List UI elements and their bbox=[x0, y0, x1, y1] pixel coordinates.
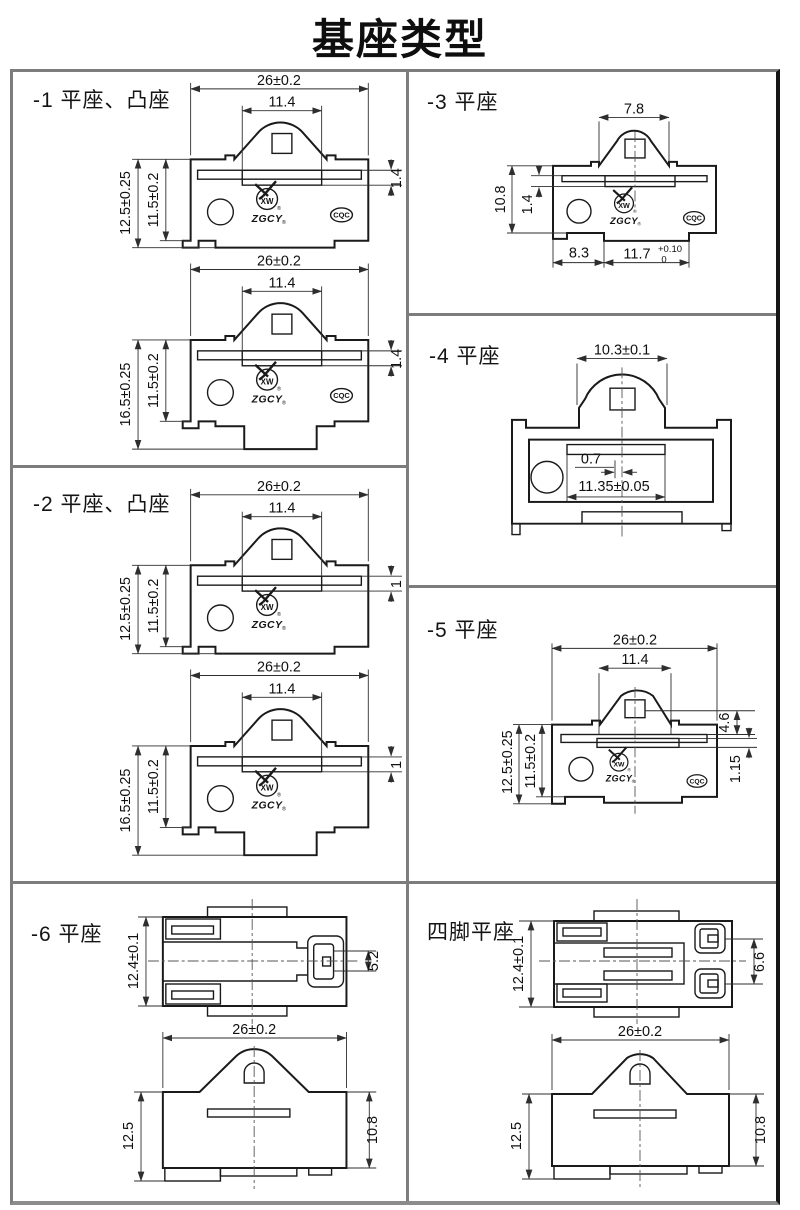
dim-label: 12.5±0.25 bbox=[118, 577, 134, 641]
panel-4: -4 平座 10.3±0.1 0.7 11.35±0.05 bbox=[409, 316, 776, 588]
dim-label: 11.35±0.05 bbox=[578, 479, 649, 495]
dim-label: 1.4 bbox=[520, 194, 536, 214]
panel-3: -3 平座 7.8 10.8 1.4 bbox=[409, 72, 776, 316]
dim-label: 11.7 bbox=[623, 247, 650, 263]
panel-four-leg-label: 四脚平座 bbox=[427, 916, 515, 946]
dim-label: 6.6 bbox=[752, 952, 768, 972]
dim-label: 11.4 bbox=[268, 501, 295, 517]
panel-1: -1 平座、凸座 26±0.2 11.4 12.5±0.25 11.5±0.2 bbox=[13, 72, 409, 468]
dim-label: 1 bbox=[389, 580, 405, 588]
dim-label: 11.5±0.2 bbox=[146, 173, 162, 228]
dim-label: 10.3±0.1 bbox=[594, 343, 650, 359]
dim-label: 12.5±0.25 bbox=[118, 171, 134, 235]
dim-label: 11.4 bbox=[268, 681, 295, 697]
dim-label: 12.4±0.1 bbox=[126, 933, 142, 989]
dim-label: 26±0.2 bbox=[257, 254, 301, 270]
dim-label: 10.8 bbox=[493, 185, 509, 213]
dim-label: 26±0.2 bbox=[257, 73, 301, 89]
dim-label: 26±0.2 bbox=[618, 1024, 662, 1040]
panel-1-drawing: 26±0.2 11.4 12.5±0.25 11.5±0.2 1.4 26±0.… bbox=[13, 72, 406, 465]
dim-label: 5.2 bbox=[366, 951, 382, 971]
dim-label: 26±0.2 bbox=[613, 632, 657, 648]
dim-label: 1.4 bbox=[389, 168, 405, 188]
dim-label: 0 bbox=[661, 255, 666, 266]
dim-label: 0.7 bbox=[581, 451, 601, 467]
panel-2-label: -2 平座、凸座 bbox=[33, 488, 171, 518]
dim-label: 16.5±0.25 bbox=[118, 363, 134, 427]
panel-5-label: -5 平座 bbox=[427, 614, 499, 644]
dim-label: 12.5 bbox=[509, 1122, 525, 1150]
dim-label: 1.15 bbox=[728, 755, 744, 783]
dim-label: 11.4 bbox=[621, 652, 648, 668]
dim-label: 12.5±0.25 bbox=[500, 730, 516, 794]
dim-label: 11.4 bbox=[268, 275, 295, 291]
dim-label: 26±0.2 bbox=[232, 1022, 276, 1038]
dim-label: 11.5±0.2 bbox=[146, 759, 162, 814]
dim-label: 10.8 bbox=[753, 1116, 769, 1144]
page-title: 基座类型 bbox=[0, 6, 800, 67]
dim-label: 11.5±0.2 bbox=[146, 579, 162, 634]
dim-label: 26±0.2 bbox=[257, 660, 301, 676]
panel-6-label: -6 平座 bbox=[31, 918, 103, 948]
dim-label: 4.6 bbox=[717, 713, 733, 733]
panel-four-leg: 四脚平座 12.4±0.1 6 bbox=[409, 884, 776, 1201]
panel-4-label: -4 平座 bbox=[429, 340, 501, 370]
panel-3-label: -3 平座 bbox=[427, 86, 499, 116]
dim-label: 11.4 bbox=[268, 95, 295, 111]
panel-1-label: -1 平座、凸座 bbox=[33, 84, 171, 114]
panel-5: -5 平座 26±0.2 11.4 12.5±0.25 11.5±0.2 bbox=[409, 588, 776, 884]
dim-label: 1 bbox=[389, 761, 405, 769]
panel-6: -6 平座 12.4±0.1 5.2 bbox=[13, 884, 409, 1201]
dim-label: 8.3 bbox=[569, 246, 589, 262]
drawing-sheet: -1 平座、凸座 26±0.2 11.4 12.5±0.25 11.5±0.2 bbox=[10, 69, 780, 1205]
dim-label: +0.10 bbox=[658, 244, 682, 255]
dim-label: 11.5±0.2 bbox=[523, 734, 539, 789]
dim-label: 1.4 bbox=[389, 349, 405, 369]
dim-label: 12.5 bbox=[121, 1122, 137, 1150]
dim-label: 7.8 bbox=[624, 102, 644, 118]
dim-label: 16.5±0.25 bbox=[118, 769, 134, 833]
dim-label: 26±0.2 bbox=[257, 479, 301, 495]
dim-label: 11.5±0.2 bbox=[146, 353, 162, 408]
panel-2-drawing: 26±0.2 11.4 12.5±0.25 11.5±0.2 1 26±0.2 bbox=[13, 468, 406, 881]
panel-2: -2 平座、凸座 26±0.2 11.4 12.5±0.25 11.5±0.2 bbox=[13, 468, 409, 884]
dim-label: 10.8 bbox=[365, 1116, 381, 1144]
